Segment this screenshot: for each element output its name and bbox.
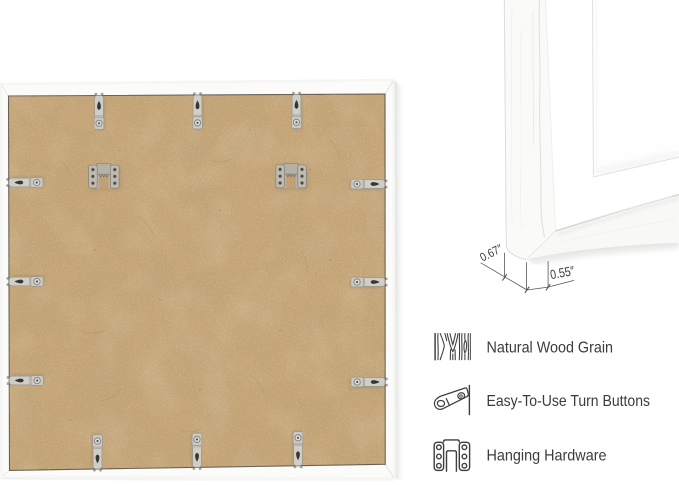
svg-text:Easy-To-Use Turn Buttons: Easy-To-Use Turn Buttons <box>487 393 651 410</box>
svg-text:Natural Wood Grain: Natural Wood Grain <box>487 339 614 356</box>
svg-text:Hanging Hardware: Hanging Hardware <box>487 448 607 465</box>
